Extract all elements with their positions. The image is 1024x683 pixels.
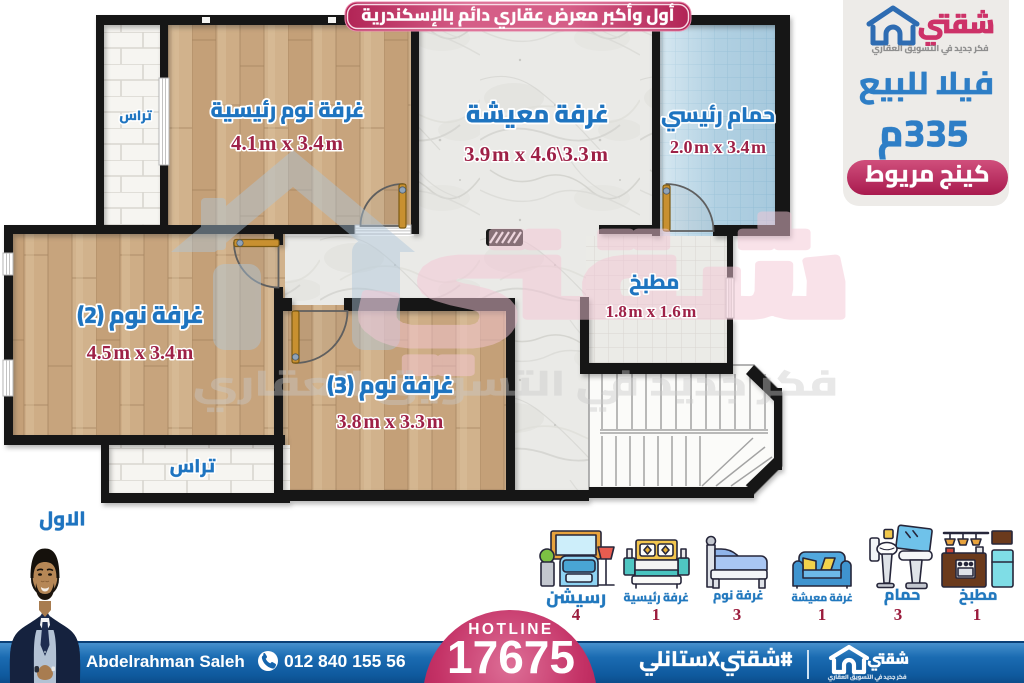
svg-text:4.1 m x 3.4 m: 4.1 m x 3.4 m — [231, 131, 344, 155]
svg-text:Abdelrahman Saleh: Abdelrahman Saleh — [86, 652, 245, 671]
svg-text:3.8 m x 3.3 m: 3.8 m x 3.3 m — [337, 411, 444, 433]
svg-text:1.8 m x 1.6 m: 1.8 m x 1.6 m — [606, 302, 697, 321]
svg-text:17675: 17675 — [447, 631, 575, 683]
svg-text:3: 3 — [894, 605, 903, 624]
svg-text:012 840 155 56: 012 840 155 56 — [284, 651, 406, 671]
svg-text:1: 1 — [818, 605, 827, 624]
svg-text:1: 1 — [652, 605, 661, 624]
svg-text:4.5 m x 3.4 m: 4.5 m x 3.4 m — [87, 342, 194, 364]
svg-text:1: 1 — [973, 605, 982, 624]
svg-text:3.9 m x 4.6\3.3 m: 3.9 m x 4.6\3.3 m — [464, 142, 609, 166]
svg-text:4: 4 — [572, 605, 581, 624]
svg-text:2.0 m x 3.4 m: 2.0 m x 3.4 m — [670, 137, 766, 157]
svg-text:3: 3 — [733, 605, 742, 624]
